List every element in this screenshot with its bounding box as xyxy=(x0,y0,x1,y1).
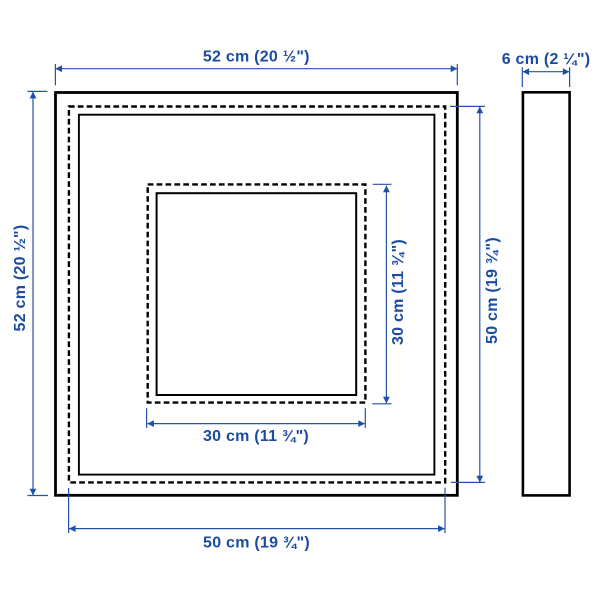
svg-text:50 cm (19 ¾"): 50 cm (19 ¾") xyxy=(203,535,310,552)
svg-text:30 cm (11 ¾"): 30 cm (11 ¾") xyxy=(203,428,309,445)
svg-text:52 cm (20 ½"): 52 cm (20 ½") xyxy=(12,225,29,332)
svg-text:50 cm (19 ¾"): 50 cm (19 ¾") xyxy=(484,237,501,344)
svg-text:30 cm (11 ¾"): 30 cm (11 ¾") xyxy=(390,239,407,345)
svg-text:52 cm (20 ½"): 52 cm (20 ½") xyxy=(203,48,310,65)
svg-text:6 cm (2 ¼"): 6 cm (2 ¼") xyxy=(502,51,591,68)
